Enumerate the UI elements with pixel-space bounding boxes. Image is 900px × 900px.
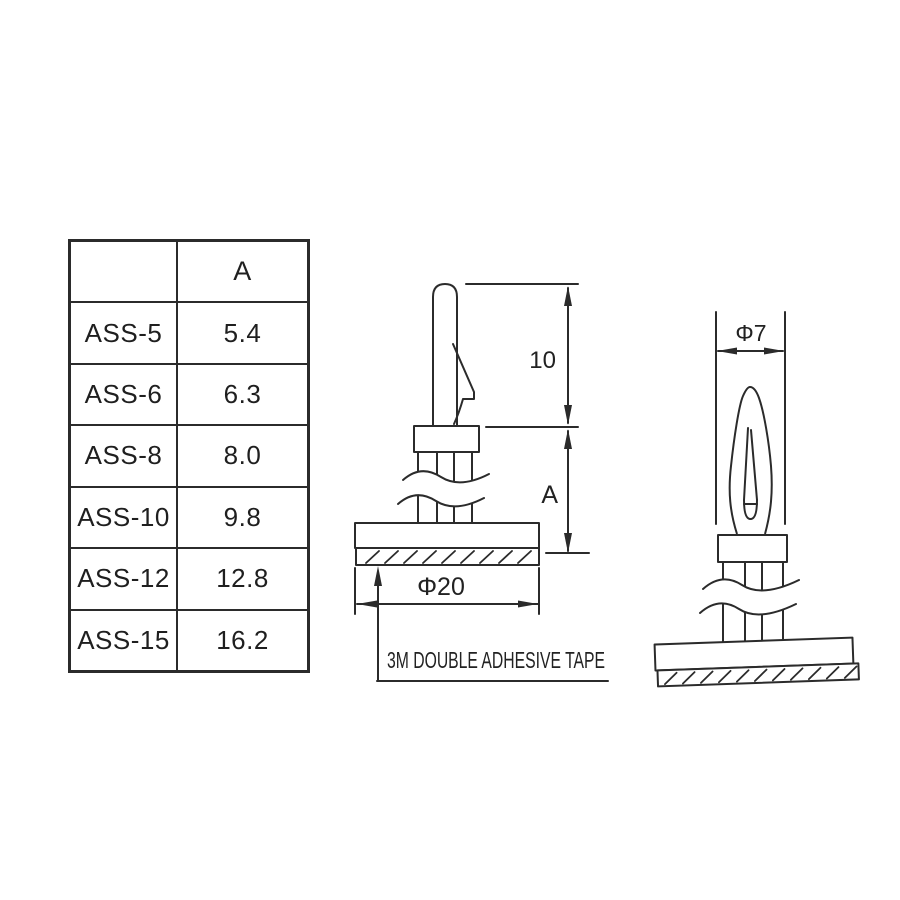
dim-label-phi20: Φ20 xyxy=(417,573,465,601)
model-cell: ASS-10 xyxy=(71,488,178,547)
model-cell: ASS-6 xyxy=(71,365,178,424)
dimension-10: 10 xyxy=(529,286,572,425)
dim-label-a: A xyxy=(541,481,558,509)
spec-table: A ASS-5 5.4 ASS-6 6.3 ASS-8 8.0 ASS-10 9… xyxy=(68,239,310,673)
model-cell: ASS-15 xyxy=(71,611,178,670)
model-cell: ASS-12 xyxy=(71,549,178,608)
spacer-collar xyxy=(414,426,479,452)
arrowhead-down xyxy=(564,405,572,425)
break-lines xyxy=(398,471,489,506)
arrowhead-left xyxy=(357,601,377,608)
dim-label-10: 10 xyxy=(529,347,556,374)
table-row: ASS-8 8.0 xyxy=(71,424,307,485)
dimension-base-diameter: Φ20 xyxy=(355,568,539,614)
drawing-canvas: A ASS-5 5.4 ASS-6 6.3 ASS-8 8.0 ASS-10 9… xyxy=(0,0,900,900)
table-header-blank xyxy=(71,242,178,301)
arrowhead-right xyxy=(764,348,784,355)
value-cell: 12.8 xyxy=(178,549,307,608)
snap-pin-front xyxy=(730,387,772,534)
value-cell: 16.2 xyxy=(178,611,307,670)
tape-callout: 3M DOUBLE ADHESIVE TAPE xyxy=(374,566,608,681)
snap-pin xyxy=(433,284,457,426)
arrowhead-down xyxy=(564,533,572,553)
value-cell: 9.8 xyxy=(178,488,307,547)
value-cell: 8.0 xyxy=(178,426,307,485)
table-header-row: A xyxy=(71,242,307,301)
arrowhead-right xyxy=(518,601,538,608)
value-cell: 5.4 xyxy=(178,303,307,362)
adhesive-tape-layer xyxy=(356,548,539,565)
break-lines xyxy=(700,579,799,614)
table-row: ASS-5 5.4 xyxy=(71,301,307,362)
table-header-a: A xyxy=(178,242,307,301)
arrowhead-up xyxy=(564,286,572,306)
arrowhead-left xyxy=(717,348,737,355)
table-row: ASS-10 9.8 xyxy=(71,486,307,547)
table-row: ASS-12 12.8 xyxy=(71,547,307,608)
arrowhead-up xyxy=(564,429,572,449)
tape-label: 3M DOUBLE ADHESIVE TAPE xyxy=(387,647,605,673)
table-row: ASS-15 16.2 xyxy=(71,609,307,670)
arrowhead-up xyxy=(374,566,382,586)
value-cell: 6.3 xyxy=(178,365,307,424)
dimension-a: A xyxy=(541,429,572,553)
table-row: ASS-6 6.3 xyxy=(71,363,307,424)
base-plate xyxy=(355,523,539,548)
front-view-drawing: 10 A Φ20 3M DOUBLE ADHESIVE TAPE xyxy=(340,270,640,700)
side-view-drawing: Φ7 xyxy=(640,300,880,700)
dim-label-phi7: Φ7 xyxy=(735,320,766,346)
spacer-collar xyxy=(718,535,787,562)
model-cell: ASS-8 xyxy=(71,426,178,485)
model-cell: ASS-5 xyxy=(71,303,178,362)
base-group xyxy=(655,637,859,686)
